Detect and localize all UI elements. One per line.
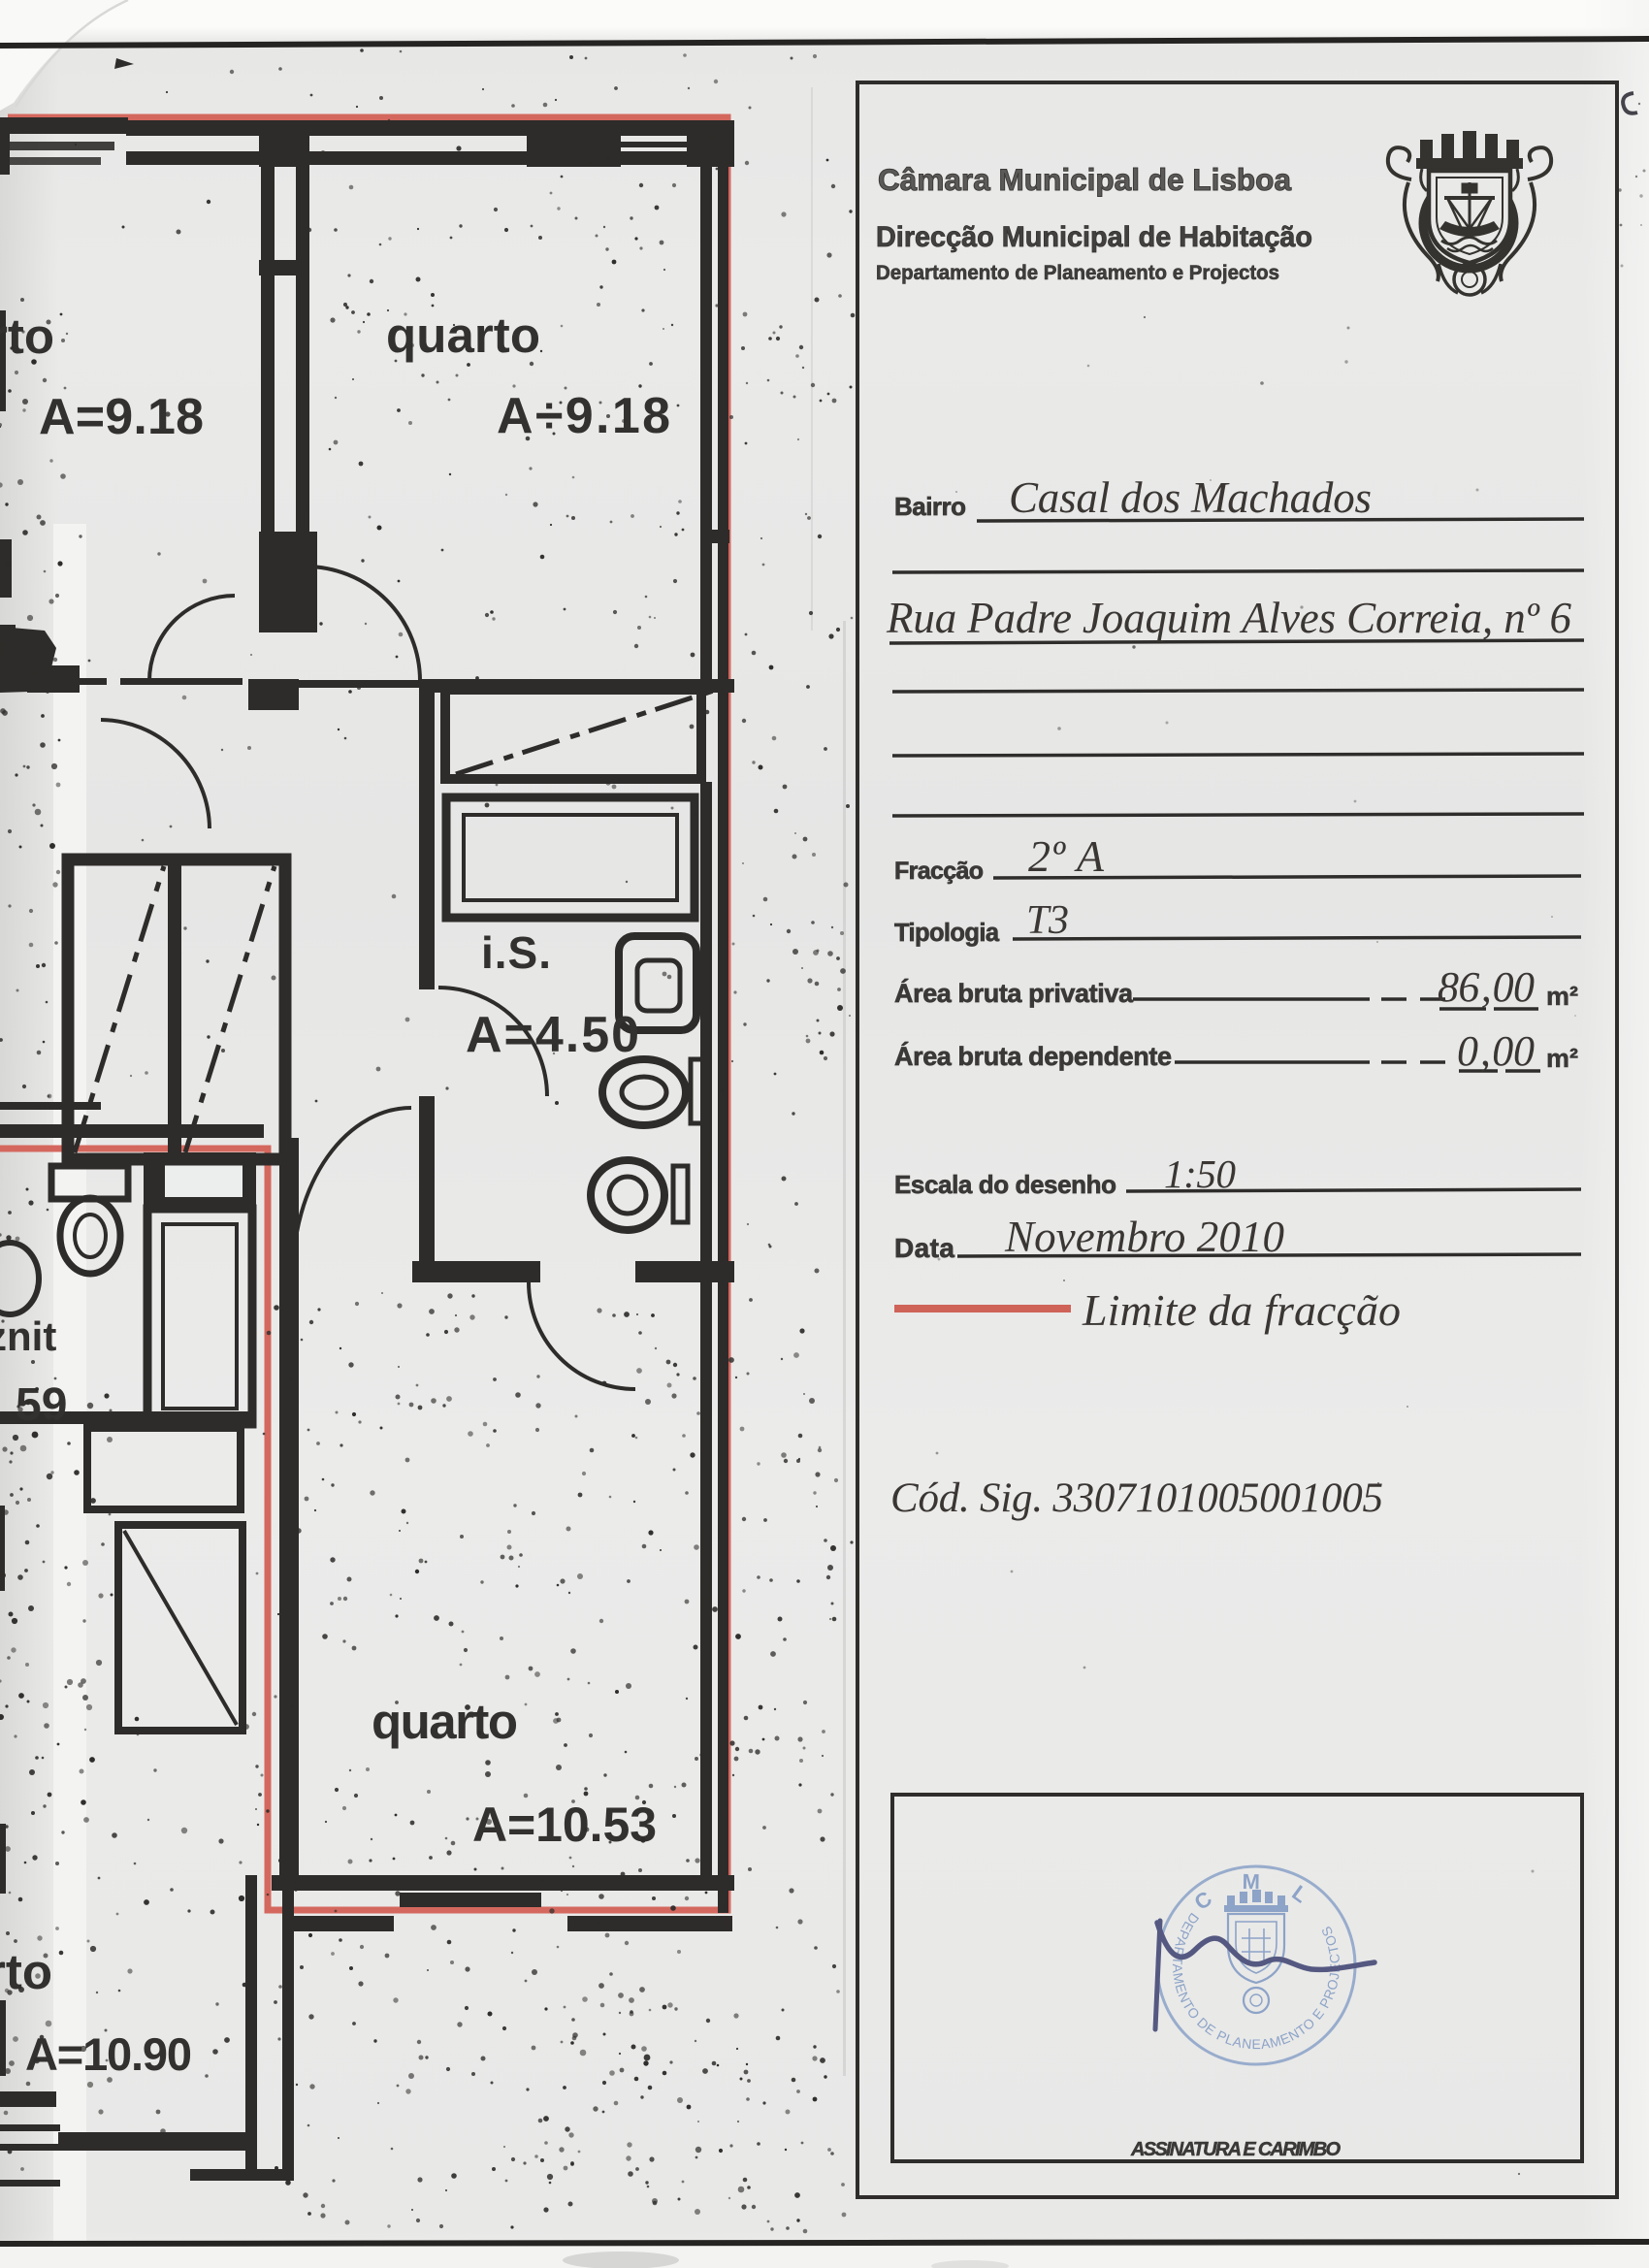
svg-text:Área bruta dependente: Área bruta dependente: [894, 1041, 1172, 1071]
svg-text:m²: m²: [1546, 1044, 1578, 1073]
svg-text:Limite da fracção: Limite da fracção: [1082, 1285, 1401, 1335]
svg-text:Casal dos Machados: Casal dos Machados: [1009, 473, 1372, 522]
svg-text:Tipologia: Tipologia: [894, 920, 1000, 947]
svg-text:0‚00: 0‚00: [1457, 1027, 1535, 1075]
svg-text:Departamento de Planeamento e: Departamento de Planeamento e Projectos: [876, 261, 1279, 284]
svg-text:Rua Padre Joaquim Alves Correi: Rua Padre Joaquim Alves Correia, nº 6: [886, 594, 1572, 642]
svg-text:Área bruta privativa: Área bruta privativa: [894, 978, 1134, 1008]
svg-text:86‚00: 86‚00: [1438, 963, 1535, 1011]
svg-text:quarto: quarto: [372, 1694, 518, 1749]
svg-text:Bairro: Bairro: [894, 492, 966, 521]
svg-text:T3: T3: [1026, 898, 1069, 943]
svg-text:DEPARTAMENTO DE PLANEAMENTO E: DEPARTAMENTO DE PLANEAMENTO E PROJECTOS: [1170, 1910, 1342, 2052]
svg-text:m²: m²: [1546, 982, 1578, 1011]
svg-text:Direcção Municipal de Habitaçã: Direcção Municipal de Habitação: [876, 221, 1312, 253]
svg-text:A=9.18: A=9.18: [39, 389, 204, 445]
svg-text:A=10.53: A=10.53: [472, 1798, 657, 1852]
svg-text:Câmara Municipal de Lisboa: Câmara Municipal de Lisboa: [878, 162, 1291, 197]
svg-text:Novembro 2010: Novembro 2010: [1004, 1213, 1284, 1261]
svg-text:Fracção: Fracção: [894, 858, 984, 885]
svg-text:A=10.90: A=10.90: [25, 2028, 192, 2080]
svg-text:Escala do desenho: Escala do desenho: [894, 1170, 1116, 1199]
svg-text:A÷9.18: A÷9.18: [497, 388, 670, 444]
svg-text:1:50: 1:50: [1164, 1151, 1236, 1196]
svg-text:ASSINATURA E CARIMBO: ASSINATURA E CARIMBO: [1130, 2139, 1341, 2160]
svg-text:quarto: quarto: [386, 308, 540, 363]
svg-text:znit: znit: [0, 1313, 56, 1359]
svg-text:59: 59: [16, 1379, 67, 1431]
svg-text:Cód. Sig. 3307101005001005: Cód. Sig. 3307101005001005: [890, 1475, 1383, 1521]
svg-text:i.S.: i.S.: [481, 927, 551, 978]
svg-text:2º A: 2º A: [1028, 831, 1105, 881]
svg-text:rto: rto: [0, 308, 54, 364]
svg-text:Data: Data: [894, 1233, 954, 1263]
svg-text:A=4.50: A=4.50: [466, 1007, 639, 1063]
